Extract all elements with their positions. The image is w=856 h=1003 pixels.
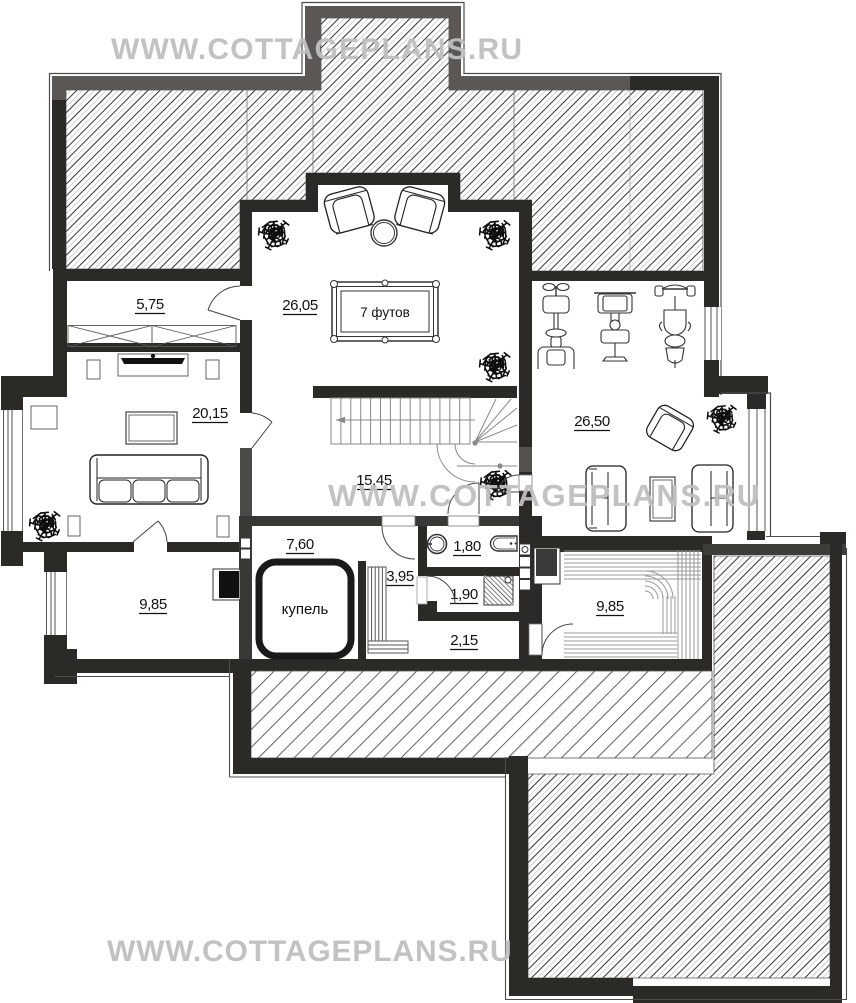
svg-text:2,15: 2,15 <box>450 632 478 649</box>
svg-text:9,85: 9,85 <box>596 598 624 615</box>
svg-text:купель: купель <box>282 601 329 618</box>
svg-text:3,95: 3,95 <box>386 568 414 585</box>
svg-text:7 футов: 7 футов <box>360 305 410 320</box>
svg-text:26,50: 26,50 <box>574 413 610 430</box>
svg-text:WWW.COTTAGEPLANS.RU: WWW.COTTAGEPLANS.RU <box>328 478 761 513</box>
svg-text:9,85: 9,85 <box>139 596 167 613</box>
svg-text:5,75: 5,75 <box>136 296 164 313</box>
svg-text:26,05: 26,05 <box>282 297 318 314</box>
svg-text:1,80: 1,80 <box>453 538 481 555</box>
svg-text:20,15: 20,15 <box>192 405 228 422</box>
svg-text:7,60: 7,60 <box>286 536 314 553</box>
svg-text:WWW.COTTAGEPLANS.RU: WWW.COTTAGEPLANS.RU <box>111 33 523 66</box>
svg-text:WWW.COTTAGEPLANS.RU: WWW.COTTAGEPLANS.RU <box>107 935 513 968</box>
